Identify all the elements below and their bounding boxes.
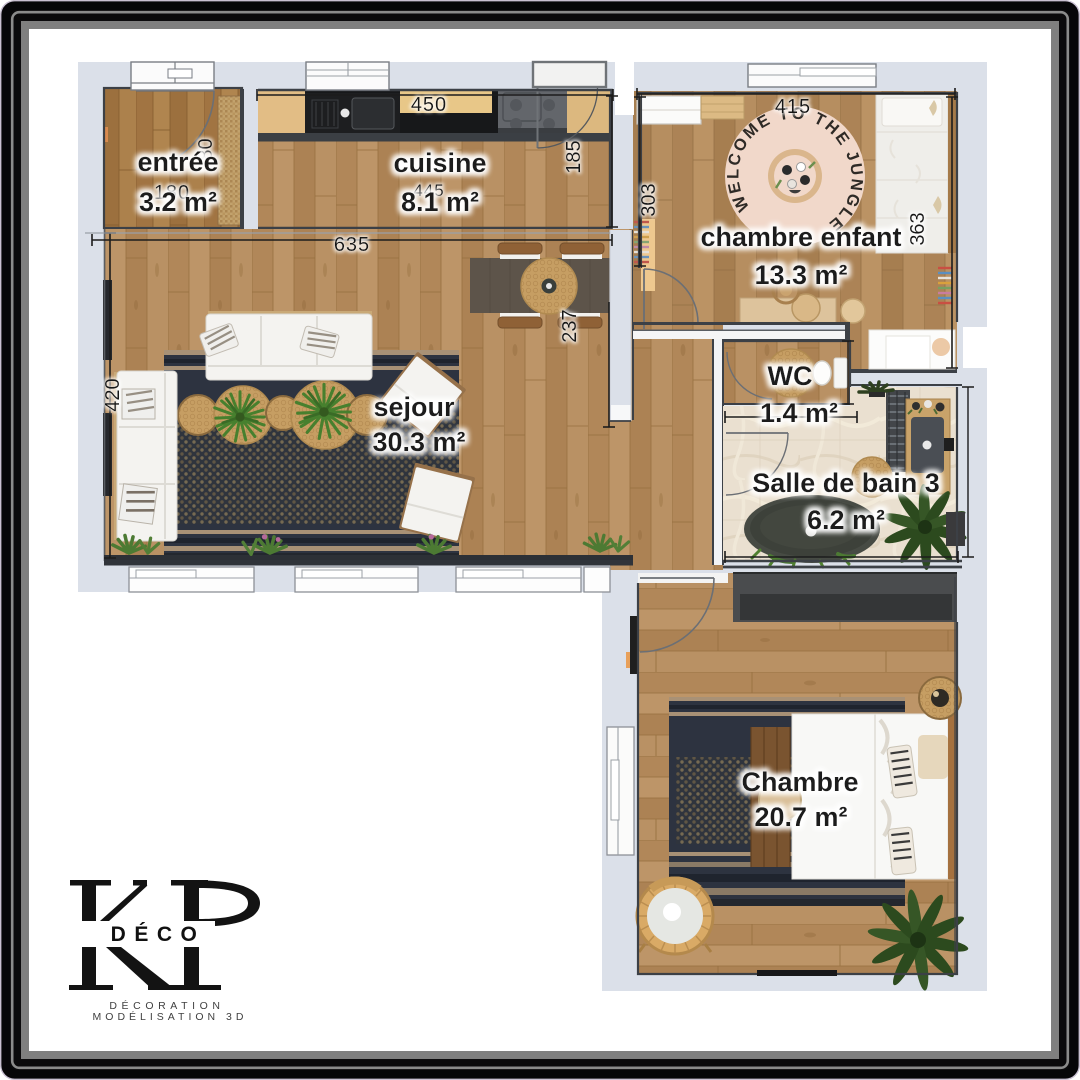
svg-text:420: 420 (102, 378, 124, 411)
svg-text:20.7 m²: 20.7 m² (754, 802, 847, 832)
svg-text:6.2 m²: 6.2 m² (807, 505, 885, 535)
svg-text:237: 237 (559, 309, 581, 342)
svg-text:DÉCO: DÉCO (111, 923, 206, 946)
svg-text:entrée: entrée (137, 147, 218, 177)
svg-text:635: 635 (334, 234, 370, 256)
svg-text:1.4 m²: 1.4 m² (760, 398, 838, 428)
svg-text:WC: WC (768, 361, 813, 391)
svg-text:13.3 m²: 13.3 m² (754, 260, 847, 290)
svg-text:Chambre: Chambre (741, 767, 858, 797)
svg-text:415: 415 (775, 96, 811, 118)
svg-text:8.1 m²: 8.1 m² (401, 187, 479, 217)
svg-text:chambre enfant: chambre enfant (700, 222, 901, 252)
svg-text:450: 450 (411, 94, 447, 116)
svg-text:185: 185 (563, 140, 585, 173)
svg-text:cuisine: cuisine (393, 148, 486, 178)
svg-text:3.2 m²: 3.2 m² (139, 187, 217, 217)
svg-text:sejour: sejour (373, 392, 455, 422)
svg-text:Salle de bain 3: Salle de bain 3 (752, 468, 940, 498)
svg-text:MODÉLISATION 3D: MODÉLISATION 3D (93, 1010, 248, 1023)
svg-text:363: 363 (907, 212, 929, 245)
svg-text:30.3 m²: 30.3 m² (372, 427, 465, 457)
svg-text:303: 303 (638, 183, 660, 216)
